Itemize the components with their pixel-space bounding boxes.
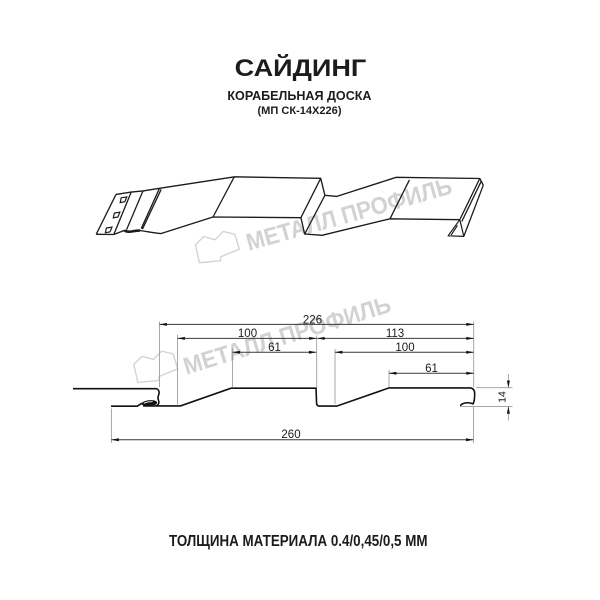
svg-text:226: 226 <box>303 314 322 326</box>
svg-text:14: 14 <box>496 391 508 403</box>
svg-text:КОРАБЕЛЬНАЯ ДОСКА: КОРАБЕЛЬНАЯ ДОСКА <box>227 88 372 103</box>
svg-text:САЙДИНГ: САЙДИНГ <box>235 54 367 82</box>
svg-text:100: 100 <box>395 342 414 354</box>
svg-text:(МП СК-14Х226): (МП СК-14Х226) <box>258 105 342 117</box>
svg-text:61: 61 <box>425 363 438 375</box>
svg-text:113: 113 <box>386 328 404 340</box>
svg-text:61: 61 <box>268 342 281 354</box>
svg-text:260: 260 <box>281 429 300 441</box>
svg-text:ТОЛЩИНА МАТЕРИАЛА 0.4/0,45/0,5: ТОЛЩИНА МАТЕРИАЛА 0.4/0,45/0,5 ММ <box>169 533 428 550</box>
svg-text:100: 100 <box>238 328 257 340</box>
